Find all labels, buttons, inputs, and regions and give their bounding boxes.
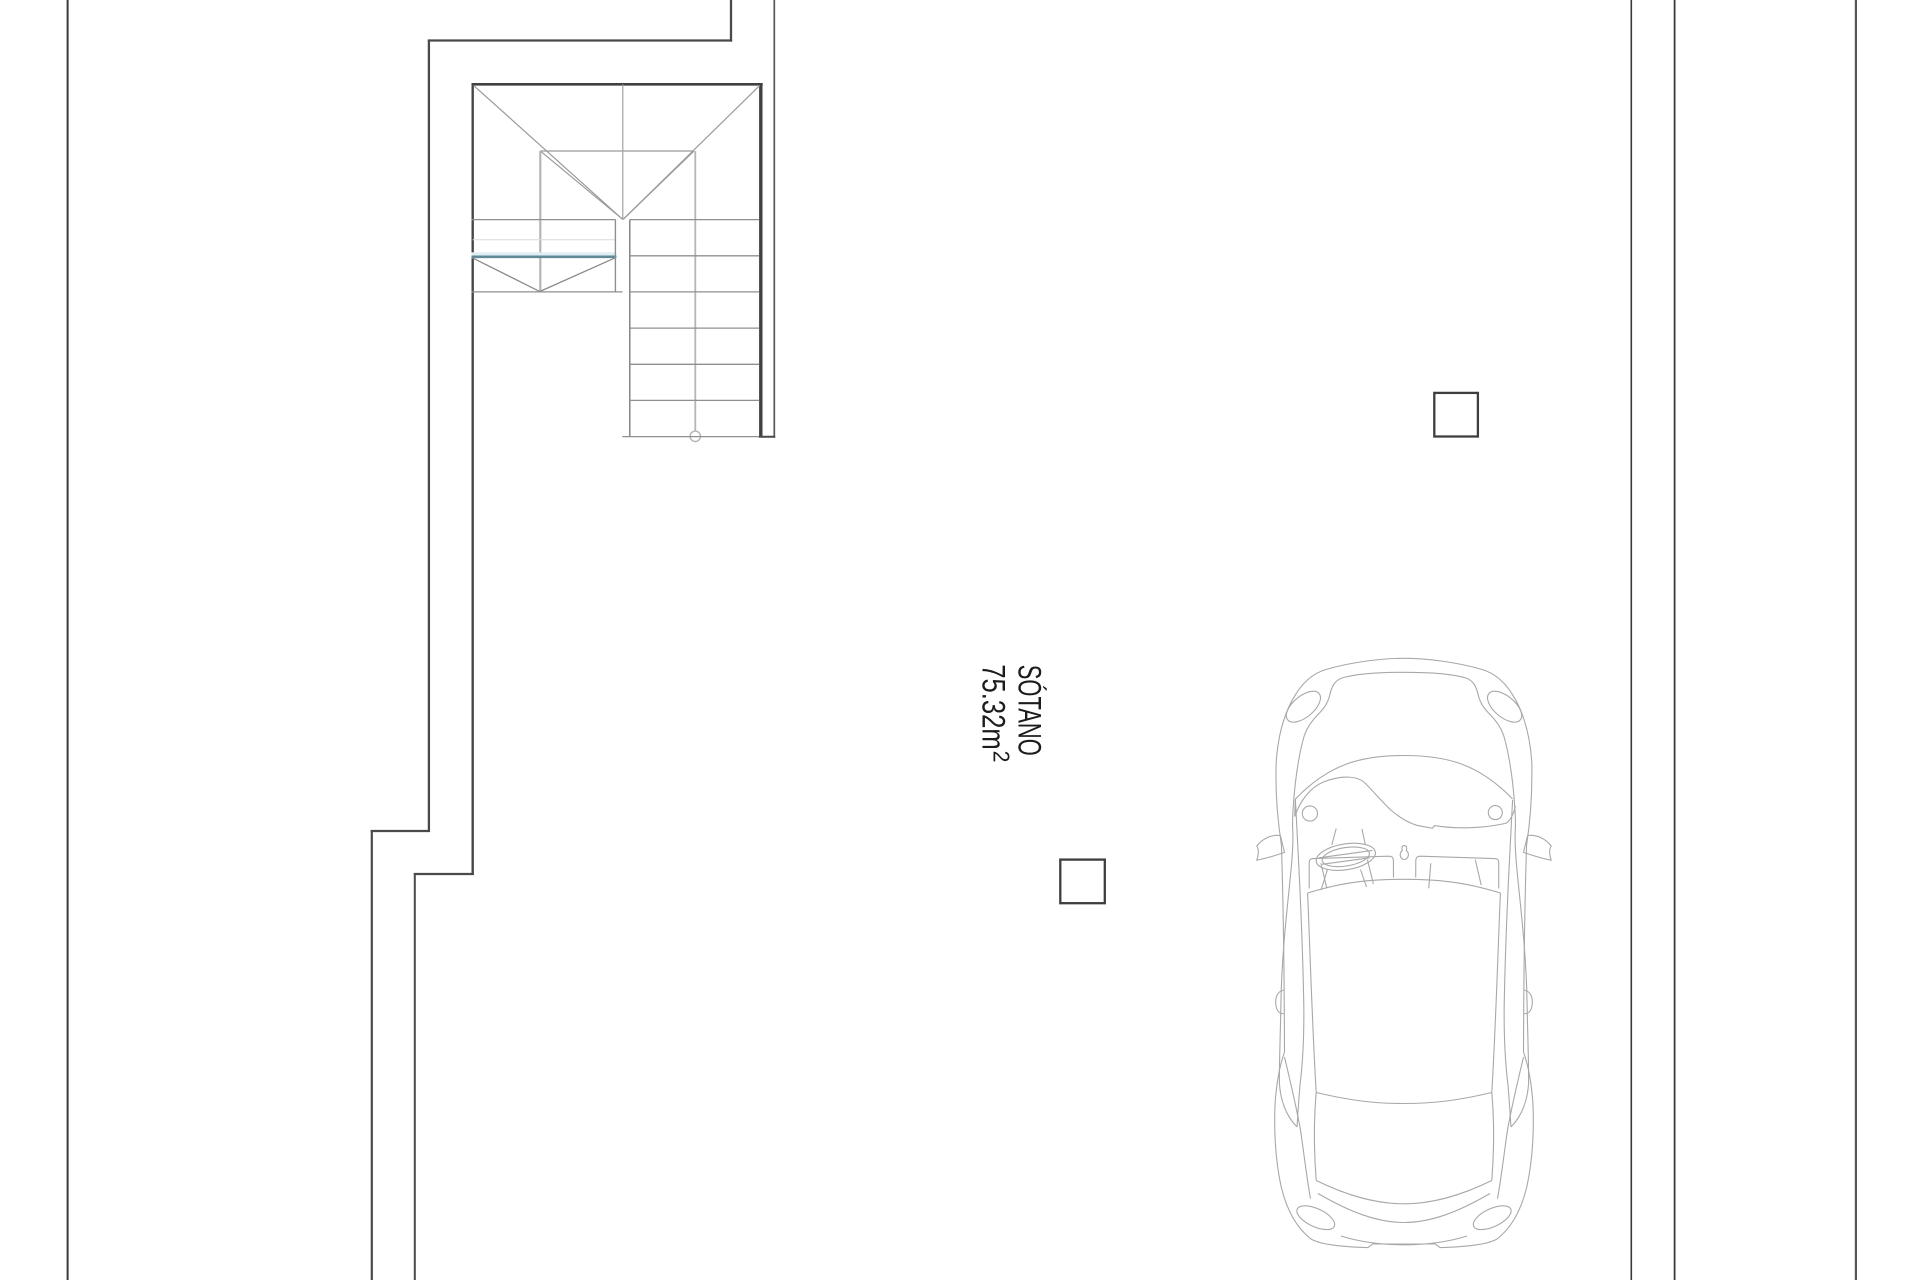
svg-text:75.32m: 75.32m: [975, 664, 1011, 750]
svg-text:SÓTANO: SÓTANO: [1012, 665, 1049, 756]
svg-text:2: 2: [988, 751, 1014, 763]
